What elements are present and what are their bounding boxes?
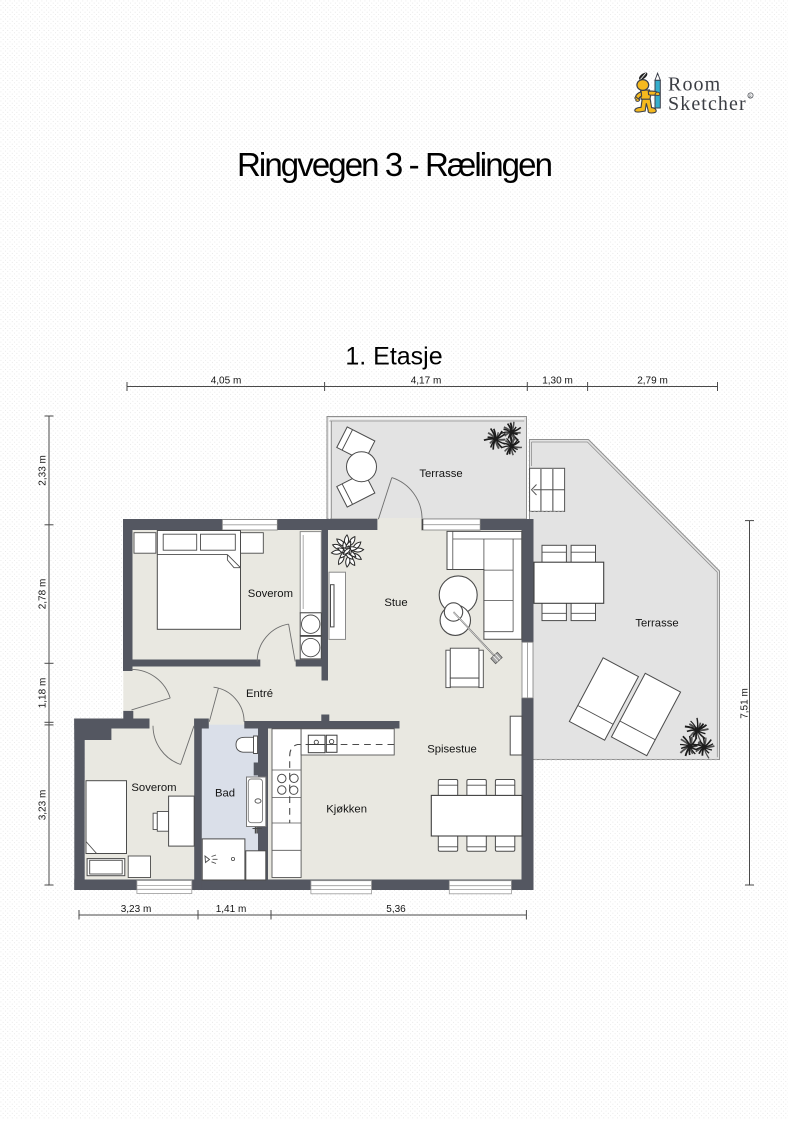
svg-text:Spisestue: Spisestue: [427, 744, 477, 756]
svg-text:1,30 m: 1,30 m: [542, 376, 573, 387]
svg-text:Ringvegen 3 - Rælingen: Ringvegen 3 - Rælingen: [237, 146, 552, 183]
svg-text:1,18 m: 1,18 m: [38, 678, 49, 709]
svg-text:Soverom: Soverom: [248, 588, 293, 600]
svg-text:Kjøkken: Kjøkken: [326, 804, 367, 816]
svg-text:1,41 m: 1,41 m: [216, 904, 247, 915]
svg-text:Entré: Entré: [246, 688, 273, 700]
svg-text:Stue: Stue: [384, 597, 407, 609]
svg-text:Soverom: Soverom: [131, 782, 176, 794]
svg-text:3,23 m: 3,23 m: [121, 904, 152, 915]
svg-text:Bad: Bad: [215, 787, 235, 799]
svg-text:2,33 m: 2,33 m: [38, 455, 49, 486]
svg-text:Sketcher: Sketcher: [668, 93, 747, 115]
svg-text:2,79 m: 2,79 m: [637, 376, 668, 387]
svg-text:4,17 m: 4,17 m: [411, 376, 442, 387]
svg-text:Terrasse: Terrasse: [635, 618, 678, 630]
svg-text:1. Etasje: 1. Etasje: [345, 343, 442, 371]
svg-text:Terrasse: Terrasse: [419, 468, 462, 480]
svg-text:7,51 m: 7,51 m: [739, 688, 750, 719]
svg-text:3,23 m: 3,23 m: [38, 790, 49, 821]
svg-text:5,36: 5,36: [386, 904, 406, 915]
svg-text:2,78 m: 2,78 m: [38, 579, 49, 610]
svg-text:4,05 m: 4,05 m: [211, 376, 242, 387]
